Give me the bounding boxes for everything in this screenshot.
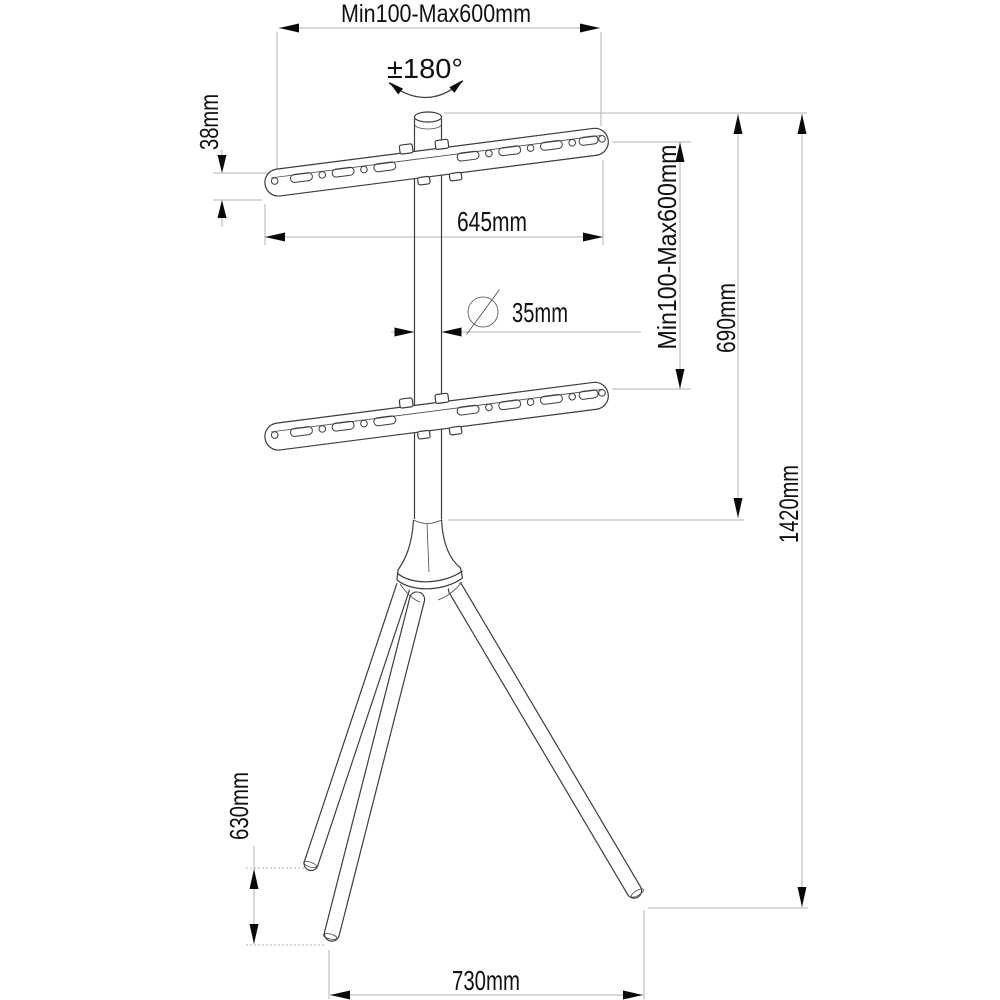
dim-bar-height: 38mm	[194, 94, 268, 227]
dim-label-mid-height: 690mm	[711, 283, 741, 353]
swivel-annotation: ±180°	[387, 53, 463, 98]
bracket-lower	[262, 373, 611, 459]
pole-top-cap	[415, 112, 442, 122]
leg-right	[446, 579, 645, 901]
dim-label-leg-height: 630mm	[224, 772, 254, 840]
dim-label-bar-height: 38mm	[194, 94, 224, 150]
dim-label-pole-diameter: 35mm	[512, 297, 568, 328]
dim-mid-height: 690mm	[444, 113, 807, 520]
dim-vertical-span: Min100-Max600mm	[612, 142, 691, 389]
dim-label-top-span: Min100-Max600mm	[341, 0, 531, 28]
bracket-upper	[262, 119, 611, 205]
dim-label-swivel: ±180°	[387, 53, 463, 84]
dim-label-total-height: 1420mm	[774, 465, 804, 543]
dim-label-vertical-span: Min100-Max600mm	[652, 145, 682, 350]
dim-label-bar-length: 645mm	[457, 206, 527, 237]
tv-stand-dimension-drawing: Min100-Max600mm ±180° 38mm 645mm 35mm	[0, 0, 1000, 1000]
technical-drawing-canvas: Min100-Max600mm ±180° 38mm 645mm 35mm	[0, 0, 1000, 1000]
dim-label-base-width: 730mm	[452, 965, 520, 996]
dim-base-width: 730mm	[329, 910, 644, 1000]
dim-pole-diameter: 35mm	[391, 290, 641, 337]
